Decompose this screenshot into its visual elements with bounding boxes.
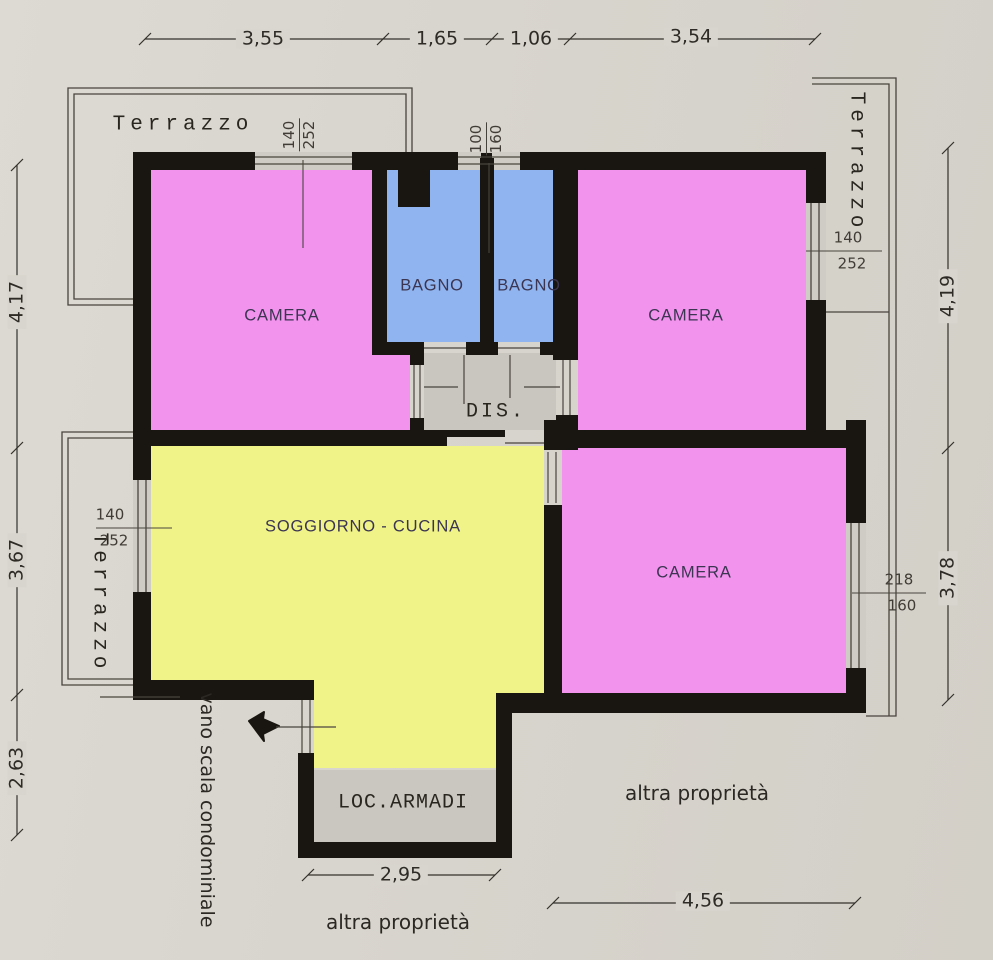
dim-bottom-armadi: 2,95 xyxy=(374,866,428,885)
window-height: 160 xyxy=(487,125,505,154)
dim-top-2: 1,65 xyxy=(410,30,464,49)
window-height: 252 xyxy=(300,121,318,150)
dis-label: DIS. xyxy=(466,401,526,424)
dim-left-2: 3,67 xyxy=(8,533,27,587)
camera-ne-label: CAMERA xyxy=(648,307,723,326)
dim-top-4: 3,54 xyxy=(664,28,718,47)
vano-scala-label: vano scala condominiale xyxy=(196,692,218,927)
dim-top-1: 3,55 xyxy=(236,30,290,49)
dim-top-3: 1,06 xyxy=(504,30,558,49)
terrazzo-top-right-label: Terrazzo xyxy=(845,92,868,233)
room-bagno-right-fill xyxy=(494,170,553,342)
window-width: 100 xyxy=(468,123,487,156)
loc-armadi-label: LOC.ARMADI xyxy=(338,792,468,815)
dim-left-3: 2,63 xyxy=(8,741,27,795)
terrazzo-left-label: Terrazzo xyxy=(88,533,111,674)
dim-right-1: 4,19 xyxy=(939,269,958,323)
window-width-camera-se: 218 xyxy=(885,573,914,588)
bagno-right-label: BAGNO xyxy=(497,277,561,296)
window-width-camera-ne: 140 xyxy=(834,231,863,246)
window-size-bagni: 100 160 xyxy=(468,123,504,156)
terrazzo-top-left-label: Terrazzo xyxy=(113,114,254,137)
camera-se-label: CAMERA xyxy=(656,564,731,583)
room-camera-ne-fill xyxy=(578,170,806,430)
dim-left-1: 4,17 xyxy=(8,275,27,329)
window-width-soggiorno: 140 xyxy=(96,508,125,523)
window-height-camera-se: 160 xyxy=(888,599,917,614)
altra-proprieta-south-label: altra proprietà xyxy=(326,910,470,934)
window-height-camera-ne: 252 xyxy=(838,257,867,272)
entrance-arrow-icon xyxy=(249,712,279,741)
camera-nw-label: CAMERA xyxy=(244,307,319,326)
room-camera-nw-fill xyxy=(151,170,410,430)
window-width: 140 xyxy=(281,119,300,152)
soggiorno-label: SOGGIORNO - CUCINA xyxy=(265,518,461,537)
dim-right-2: 3,78 xyxy=(939,551,958,605)
dim-bottom-right: 4,56 xyxy=(676,892,730,911)
altra-proprieta-east-label: altra proprietà xyxy=(625,781,769,805)
floorplan-page: Terrazzo Terrazzo Terrazzo vano scala co… xyxy=(0,0,993,960)
window-size-camera-nw: 140 252 xyxy=(281,119,317,152)
bagno-left-label: BAGNO xyxy=(400,277,464,296)
window-height-soggiorno: 252 xyxy=(100,534,129,549)
